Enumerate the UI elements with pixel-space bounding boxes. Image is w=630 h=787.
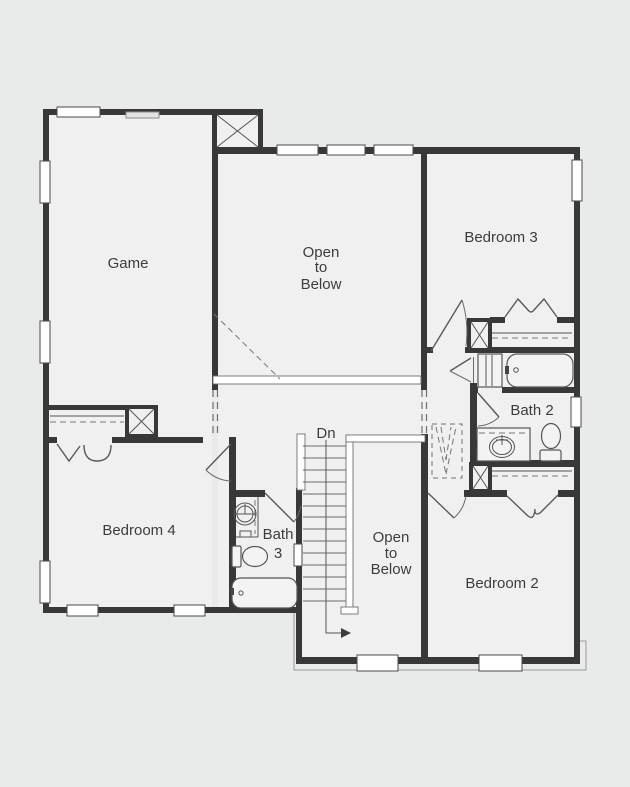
wall-bath2-mid-a	[470, 387, 478, 393]
wall-bottom	[298, 657, 580, 664]
column-x-large	[212, 110, 263, 152]
label-open-to-below-upper: Below	[301, 276, 342, 293]
window-icon	[40, 321, 50, 363]
railing-hatch-icon	[341, 607, 358, 614]
window-icon	[40, 161, 50, 203]
label-bedroom3: Bedroom 3	[464, 229, 537, 246]
column-x-bedroom2-closet	[469, 462, 492, 493]
window-icon	[67, 605, 98, 616]
column-x-bedroom4-closet	[125, 405, 158, 438]
window-icon	[571, 397, 581, 427]
label-bath3: 3	[274, 545, 282, 562]
railing-hatch-icon	[346, 442, 353, 610]
label-open-to-below-upper: to	[315, 259, 328, 276]
floor-plan-page: { "plan": { "type": "architectural-floor…	[0, 0, 630, 787]
label-bath3: Bath	[263, 526, 294, 543]
label-bath2: Bath 2	[510, 402, 553, 419]
wall-game-right	[212, 115, 218, 390]
wall-bath3-north	[229, 490, 265, 497]
wall-bedroom3-closet-b	[557, 317, 574, 323]
railing-hatch-icon	[346, 435, 425, 442]
wall-bedroom4-north-a	[46, 437, 57, 443]
window-icon	[277, 145, 318, 155]
wall-bedroom4-closet-top	[46, 405, 128, 410]
wall-stair-left	[296, 488, 302, 664]
label-open-to-below-lower: Open	[373, 529, 410, 546]
label-bedroom2: Bedroom 2	[465, 575, 538, 592]
toilet-icon	[232, 546, 268, 567]
label-game: Game	[108, 255, 149, 272]
window-icon	[374, 145, 413, 155]
floor-plan-canvas: Game Open to Below Bedroom 3 Bath 2 Bedr…	[0, 0, 630, 787]
label-open-to-below-lower: Below	[371, 561, 412, 578]
wall-bedroom2-north-b	[558, 490, 575, 497]
window-icon	[572, 160, 582, 201]
label-open-to-below-lower: to	[385, 545, 398, 562]
window-icon	[357, 655, 398, 671]
bathtub-icon	[505, 354, 573, 387]
linen-shelves	[478, 354, 502, 387]
window-icon	[40, 561, 50, 603]
toilet-icon	[540, 424, 561, 462]
label-bedroom4: Bedroom 4	[102, 522, 175, 539]
wall-bedroom3-west	[421, 147, 427, 390]
bath3-wall-niche	[294, 544, 302, 566]
window-icon	[479, 655, 522, 671]
label-stairs-down: Dn	[316, 425, 335, 442]
column-x-bedroom3-closet	[467, 318, 492, 352]
wall-bath2-west-lower	[470, 393, 477, 467]
bathtub-icon	[230, 578, 297, 608]
window-icon	[327, 145, 365, 155]
window-icon	[174, 605, 205, 616]
vanity-sink-icon	[472, 428, 530, 461]
wall-bedroom2-west	[421, 434, 428, 657]
window-icon	[57, 107, 100, 117]
wall-vent-detail	[126, 112, 159, 118]
railing-hatch-icon	[213, 376, 421, 384]
wall-bedroom3-closet-a	[490, 317, 505, 323]
wall-bath2-mid-b	[502, 387, 580, 393]
